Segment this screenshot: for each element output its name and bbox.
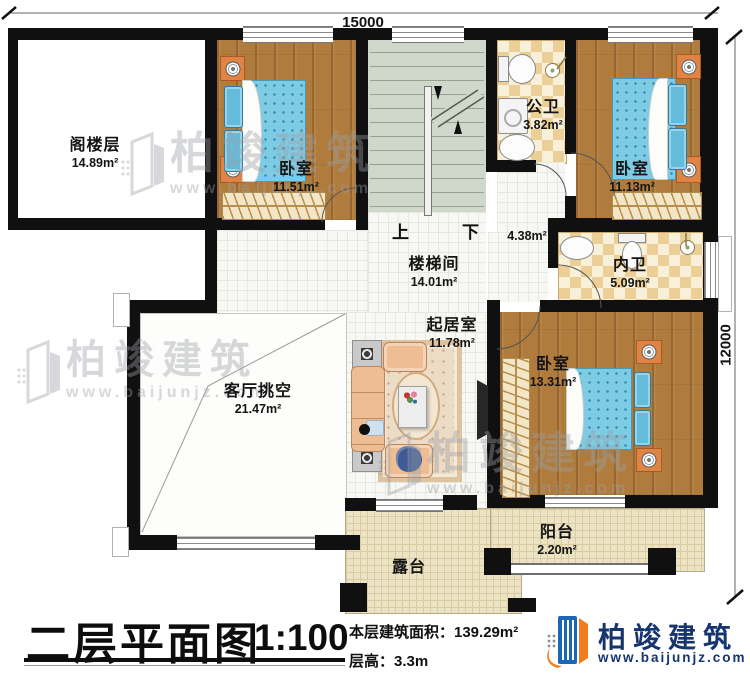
side-table [352, 340, 382, 368]
sill-inner-bath-right [718, 236, 732, 312]
window-stairwell [392, 26, 464, 43]
dimension-right: 12000 [718, 324, 735, 366]
room-label-terrace: 露台 [392, 558, 426, 578]
wall-bedroom3-bottom-b [625, 495, 703, 508]
nightstand [676, 54, 701, 79]
sink-icon [560, 236, 594, 260]
pillar-terrace-nw [345, 498, 376, 511]
window-bedroom1 [243, 26, 333, 43]
brand-logo-icon [542, 610, 594, 674]
room-label-living-void: 客厅挑空 21.47m² [224, 382, 292, 418]
sink-icon [499, 134, 535, 161]
page-title: 二层平面图 [26, 608, 261, 672]
room-label-stairwell: 楼梯间 14.01m² [408, 255, 459, 291]
wall-hall-bedroom3-b [540, 300, 718, 312]
living-void-floor [140, 313, 347, 537]
wall-right-top [700, 28, 718, 232]
wall-attic-bottom [8, 218, 218, 230]
wall-attic-left [8, 28, 18, 230]
wall-innerbath-left [548, 222, 558, 268]
pillow [634, 410, 651, 446]
sofa [351, 366, 385, 452]
room-label-bedroom3: 卧室 13.31m² [530, 355, 577, 391]
watermark-building-icon [118, 132, 170, 196]
brand-url: www.baijunjz.com [598, 650, 747, 665]
lamp-icon [642, 345, 657, 360]
pillar-terrace-s [508, 598, 536, 612]
room-label-hallway-area: 4.38m² [507, 229, 547, 245]
pillow [668, 84, 687, 126]
wall-right-bedroom3 [703, 312, 718, 508]
shower-head-icon [545, 63, 560, 78]
shower-head-icon [680, 240, 695, 255]
wall-void-bottom-b [315, 535, 360, 550]
wall-attic-right [205, 28, 217, 230]
pillow [668, 128, 687, 170]
wall-void-bottom-a [127, 535, 177, 550]
wall-bedroom3-left [487, 300, 500, 508]
stairs-up-label: 上 [392, 218, 409, 243]
scale-label: 1:100 [254, 617, 349, 659]
wall-void-top [127, 300, 217, 313]
door-terrace-sliding [376, 499, 443, 512]
tv-icon [477, 380, 488, 440]
lamp-icon [681, 59, 696, 74]
wall-bath-bedroom2-a [565, 28, 576, 154]
window-bedroom3-balcony [545, 497, 625, 508]
stair-handrail [424, 86, 432, 216]
armchair [383, 342, 427, 372]
room-label-balcony: 阳台 2.20m² [537, 523, 577, 559]
table-flowers [401, 390, 421, 408]
hall-floor-b [217, 230, 368, 312]
building-area-text: 本层建筑面积：139.29m² [349, 621, 518, 642]
sill-void-left-bottom [112, 527, 129, 557]
pillar-balcony-sw [484, 548, 511, 575]
room-label-bedroom1: 卧室 11.51m² [273, 160, 319, 196]
pillow [224, 86, 243, 128]
blanket [396, 446, 422, 472]
lamp-icon [642, 453, 657, 468]
room-label-sitting-room: 起居室 11.78m² [426, 316, 477, 352]
wardrobe-bedroom2 [612, 192, 702, 220]
pillow [634, 372, 651, 408]
wall-stairs-bath [486, 28, 497, 168]
nightstand [636, 448, 662, 472]
wall-bedroom1-stairs [356, 28, 368, 230]
balcony-railing [505, 563, 648, 575]
wardrobe-bedroom1 [222, 192, 326, 220]
floor-plan-canvas: 阁楼层 14.89m² 卧室 11.51m² 楼梯间 14.01m² 公卫 3.… [0, 0, 750, 683]
watermark-building-icon [14, 340, 66, 404]
pillow [224, 130, 243, 172]
room-label-bedroom2: 卧室 11.13m² [609, 160, 655, 196]
stairs-down-label: 下 [462, 218, 479, 243]
pillar-terrace-n [443, 495, 477, 510]
dimension-top: 15000 [342, 14, 384, 31]
person-head [359, 424, 370, 435]
window-void-bottom [177, 537, 315, 550]
room-label-inner-bath: 内卫 5.09m² [610, 256, 650, 292]
floor-height-text: 层高：3.3m [349, 650, 428, 671]
toilet-bowl-icon [508, 54, 536, 84]
lamp-icon [225, 61, 240, 76]
pillar-balcony-se [648, 548, 676, 575]
wall-bath-bottom [486, 160, 536, 172]
wall-void-left [127, 300, 140, 548]
sill-void-left-top [113, 293, 130, 327]
room-label-attic: 阁楼层 14.89m² [69, 136, 120, 172]
pillar-terrace-sw [340, 583, 367, 612]
nightstand [220, 56, 245, 81]
wardrobe-bedroom3 [502, 358, 530, 498]
window-bedroom2 [608, 26, 693, 43]
room-label-public-bath: 公卫 3.82m² [523, 98, 563, 134]
title-underline-thin [24, 665, 345, 666]
window-inner-bath [704, 242, 719, 298]
wall-bedroom2-innerbath [548, 218, 718, 232]
title-underline [24, 658, 345, 662]
nightstand [636, 340, 662, 364]
